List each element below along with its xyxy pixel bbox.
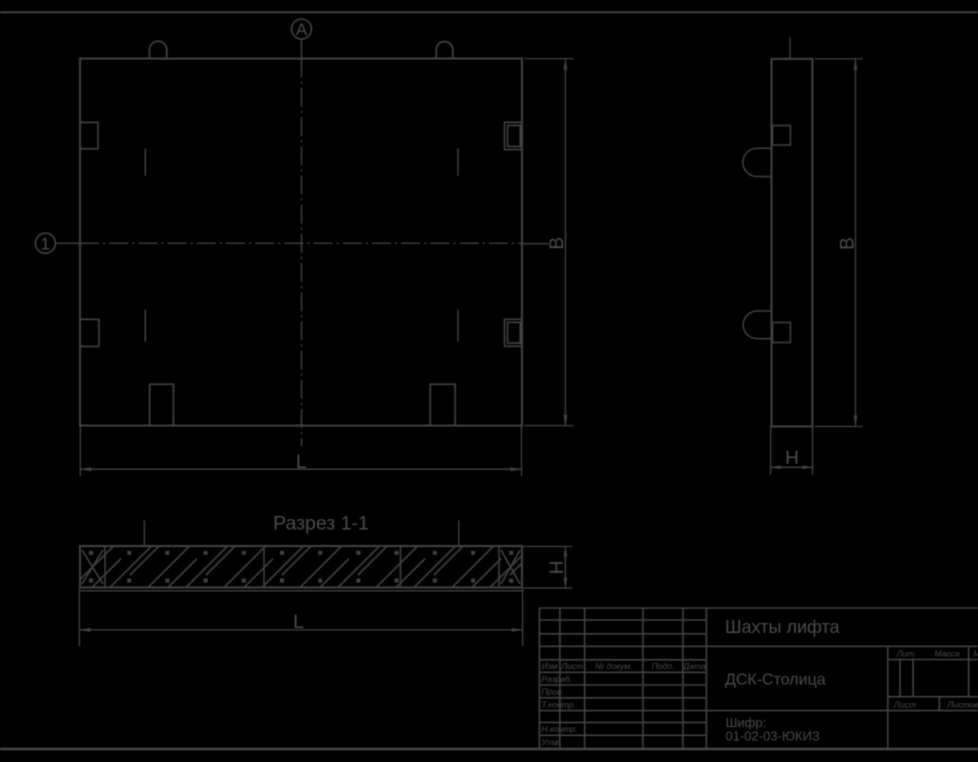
svg-text:Пров.: Пров.	[542, 687, 564, 697]
svg-text:№ докум.: № докум.	[595, 661, 632, 671]
svg-text:А: А	[296, 20, 308, 39]
svg-text:Разраб.: Разраб.	[542, 674, 573, 684]
svg-text:B: B	[837, 237, 858, 250]
svg-text:Н: Н	[547, 561, 568, 575]
svg-text:ДСК-Столица: ДСК-Столица	[725, 672, 826, 689]
svg-text:Лист: Лист	[893, 700, 916, 710]
svg-text:01-02-03-ЮКИЗ: 01-02-03-ЮКИЗ	[726, 728, 820, 743]
svg-text:Изм: Изм	[542, 661, 558, 671]
svg-text:Утв.: Утв.	[541, 737, 561, 747]
svg-text:Масштаб: Масштаб	[973, 649, 978, 659]
svg-text:Дата: Дата	[682, 661, 706, 671]
svg-text:Масса: Масса	[934, 649, 959, 659]
svg-text:Разрез 1-1: Разрез 1-1	[273, 513, 369, 535]
svg-text:Листов: Листов	[947, 700, 978, 710]
svg-text:Лит.: Лит.	[896, 649, 917, 659]
svg-text:L: L	[293, 611, 304, 633]
svg-text:B: B	[547, 237, 568, 250]
svg-text:1: 1	[41, 234, 50, 253]
svg-text:Лист: Лист	[560, 661, 583, 671]
svg-text:L: L	[296, 451, 307, 473]
svg-text:Т.контр.: Т.контр.	[542, 699, 576, 709]
svg-text:Подп.: Подп.	[652, 661, 675, 671]
svg-text:H: H	[785, 448, 799, 469]
svg-text:Шахты лифта: Шахты лифта	[725, 617, 841, 637]
svg-text:Н.контр.: Н.контр.	[542, 724, 578, 734]
